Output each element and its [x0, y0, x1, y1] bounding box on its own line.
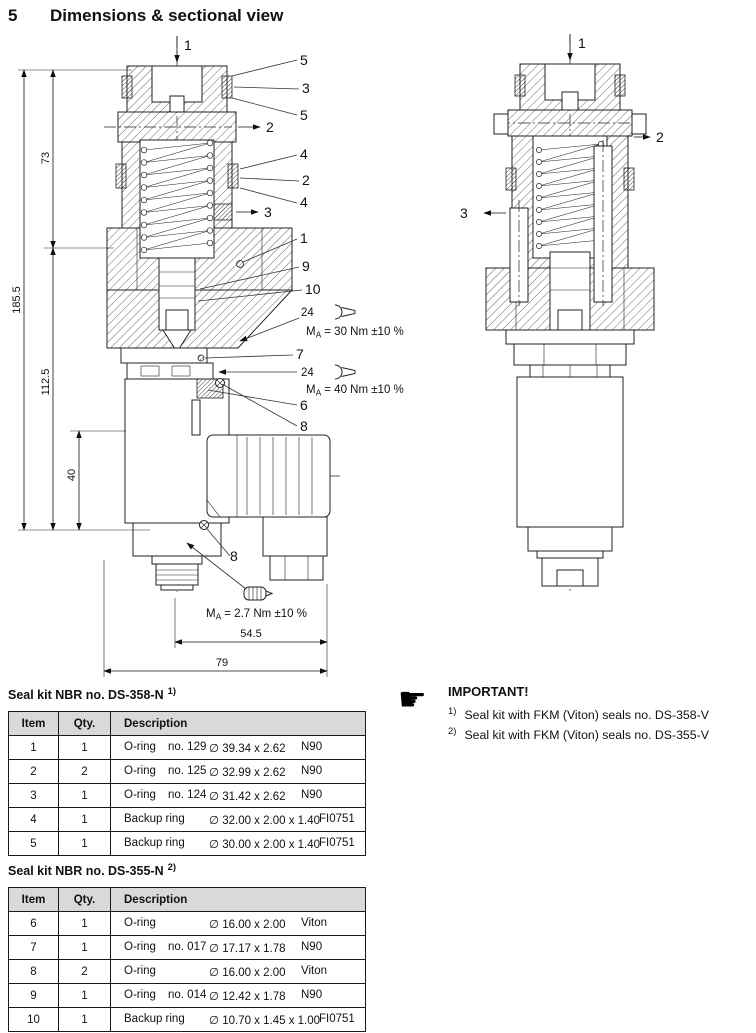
callout-label: 10	[305, 281, 321, 297]
cable-gland	[263, 517, 327, 556]
cell-item: 8	[9, 960, 59, 984]
seal-kit-2-table: Item Qty. Description 6 1 O-ring∅ 16.00 …	[8, 887, 366, 1032]
table-row: 2 2 O-ringno. 125∅ 32.99 x 2.62N90	[9, 760, 366, 784]
port-2-arrow: 2	[238, 119, 274, 135]
o-ring-seal	[198, 355, 204, 361]
callout-label: 8	[230, 548, 238, 564]
valve-seat	[550, 252, 590, 330]
cell-description: O-ringno. 125∅ 32.99 x 2.62N90	[111, 760, 366, 784]
port-3-arrow: 3	[236, 204, 272, 220]
page-title: 5 Dimensions & sectional view	[8, 6, 283, 26]
callout-label: 5	[300, 52, 308, 68]
table-row: 9 1 O-ringno. 014∅ 12.42 x 1.78N90	[9, 984, 366, 1008]
cell-qty: 2	[59, 960, 111, 984]
table-row: 5 1 Backup ring∅ 30.00 x 2.00 x 1.40FI07…	[9, 832, 366, 856]
cell-qty: 1	[59, 984, 111, 1008]
cell-qty: 1	[59, 936, 111, 960]
cell-item: 1	[9, 736, 59, 760]
cell-qty: 1	[59, 832, 111, 856]
port-plug	[214, 204, 232, 220]
seal-kit-title-text: Seal kit NBR no. DS-355-N	[8, 864, 164, 878]
dim-lower-height: 112.5	[40, 369, 52, 396]
torque-value: MA= 2.7 Nm ±10 %	[206, 608, 307, 622]
cell-item: 9	[9, 984, 59, 1008]
callout-label: 2	[266, 119, 274, 135]
callout-label: 1	[300, 230, 308, 246]
table-row: 3 1 O-ringno. 124∅ 31.42 x 2.62N90	[9, 784, 366, 808]
col-item: Item	[9, 888, 59, 912]
callout-label: 2	[302, 172, 310, 188]
torque-value: MA= 30 Nm ±10 %	[306, 326, 404, 340]
o-ring-seal	[237, 261, 244, 268]
cell-qty: 1	[59, 808, 111, 832]
port-1-arrow: 1	[570, 34, 586, 60]
cell-description: Backup ring∅ 10.70 x 1.45 x 1.00FI0751	[111, 1008, 366, 1032]
seal-kit-1-table: Item Qty. Description 1 1 O-ringno. 129∅…	[8, 711, 366, 856]
cell-description: Backup ring∅ 32.00 x 2.00 x 1.40FI0751	[111, 808, 366, 832]
callout-label: 1	[578, 35, 586, 51]
left-sectional-view: 1 2 3 5 3 5 4 2	[11, 36, 404, 677]
callout-label: 4	[300, 146, 308, 162]
open-end-wrench-icon	[323, 365, 355, 379]
torque-value: MA= 40 Nm ±10 %	[306, 384, 404, 398]
cell-description: O-ring∅ 16.00 x 2.00Viton	[111, 960, 366, 984]
section-title: Dimensions & sectional view	[50, 6, 283, 26]
cell-item: 4	[9, 808, 59, 832]
cell-description: O-ringno. 129∅ 39.34 x 2.62N90	[111, 736, 366, 760]
torque-note-40nm: 24 MA= 40 Nm ±10 %	[219, 365, 404, 398]
table-row: 8 2 O-ring∅ 16.00 x 2.00Viton	[9, 960, 366, 984]
o-ring-seal	[515, 75, 525, 96]
table-row: 6 1 O-ring∅ 16.00 x 2.00Viton	[9, 912, 366, 936]
din-connector	[207, 435, 330, 580]
callout-label: 2	[656, 129, 664, 145]
cell-item: 6	[9, 912, 59, 936]
footnote-ref: 2)	[168, 862, 176, 873]
port-3-arrow: 3	[460, 205, 506, 221]
wrench-size: 24	[301, 307, 314, 319]
col-qty: Qty.	[59, 712, 111, 736]
sectional-view-drawings: 1 2 3 5 3 5 4 2	[0, 28, 756, 680]
col-description: Description	[111, 712, 366, 736]
important-title: IMPORTANT!	[448, 684, 709, 699]
pointing-hand-icon: ☛	[398, 684, 448, 743]
hand-tight-icon	[244, 587, 272, 600]
cell-qty: 1	[59, 736, 111, 760]
cell-description: Backup ring∅ 30.00 x 2.00 x 1.40FI0751	[111, 832, 366, 856]
footnote-line: 2)Seal kit with FKM (Viton) seals no. DS…	[448, 724, 709, 744]
table-header-row: Item Qty. Description	[9, 888, 366, 912]
o-ring-seal	[228, 164, 238, 188]
wrench-size: 24	[301, 367, 314, 379]
table-row: 7 1 O-ringno. 017∅ 17.17 x 1.78N90	[9, 936, 366, 960]
col-qty: Qty.	[59, 888, 111, 912]
callout-label: 8	[300, 418, 308, 434]
cell-description: O-ringno. 014∅ 12.42 x 1.78N90	[111, 984, 366, 1008]
callout-label: 9	[302, 258, 310, 274]
callout-label: 3	[460, 205, 468, 221]
footnote-ref: 1)	[168, 686, 176, 697]
cell-item: 7	[9, 936, 59, 960]
dim-width-overall: 79	[216, 657, 228, 669]
callout-label: 4	[300, 194, 308, 210]
o-ring-seal	[615, 75, 625, 96]
bottom-plug	[133, 521, 221, 591]
cell-description: O-ring∅ 16.00 x 2.00Viton	[111, 912, 366, 936]
dim-connector-height: 40	[66, 469, 78, 481]
cell-qty: 1	[59, 784, 111, 808]
callout-label: 3	[264, 204, 272, 220]
dim-overall-height: 185.5	[11, 286, 23, 314]
dim-width-inner: 54.5	[240, 628, 261, 640]
table-row: 1 1 O-ringno. 129∅ 39.34 x 2.62N90	[9, 736, 366, 760]
table-row: 4 1 Backup ring∅ 32.00 x 2.00 x 1.40FI07…	[9, 808, 366, 832]
callout-label: 6	[300, 397, 308, 413]
o-ring-seal	[222, 76, 232, 98]
cell-item: 2	[9, 760, 59, 784]
o-ring-seal	[122, 76, 132, 98]
dim-upper-height: 73	[40, 152, 52, 164]
cell-qty: 1	[59, 1008, 111, 1032]
callout-label: 7	[296, 346, 304, 362]
table-row: 10 1 Backup ring∅ 10.70 x 1.45 x 1.00FI0…	[9, 1008, 366, 1032]
callout-label: 5	[300, 107, 308, 123]
seal-kit-1-title: Seal kit NBR no. DS-358-N1)	[8, 686, 176, 702]
cell-qty: 2	[59, 760, 111, 784]
cell-item: 5	[9, 832, 59, 856]
right-sectional-view: 1 2 3	[460, 34, 664, 592]
cell-item: 3	[9, 784, 59, 808]
seal-kit-title-text: Seal kit NBR no. DS-358-N	[8, 688, 164, 702]
open-end-wrench-icon	[323, 305, 355, 319]
callout-label: 1	[184, 37, 192, 53]
o-ring-seal	[116, 164, 126, 188]
cell-description: O-ringno. 124∅ 31.42 x 2.62N90	[111, 784, 366, 808]
o-ring-seal	[506, 168, 516, 190]
footnote-line: 1)Seal kit with FKM (Viton) seals no. DS…	[448, 704, 709, 724]
seal-kit-2-title: Seal kit NBR no. DS-355-N2)	[8, 862, 176, 878]
section-number: 5	[8, 6, 50, 26]
footnote-ref: 1)	[448, 706, 456, 717]
o-ring-seal	[624, 168, 634, 190]
footnote-ref: 2)	[448, 726, 456, 737]
cell-description: O-ringno. 017∅ 17.17 x 1.78N90	[111, 936, 366, 960]
document-page: 5 Dimensions & sectional view	[0, 0, 756, 1033]
port-1-arrow: 1	[177, 36, 192, 62]
col-item: Item	[9, 712, 59, 736]
table-header-row: Item Qty. Description	[9, 712, 366, 736]
cell-qty: 1	[59, 912, 111, 936]
callout-label: 3	[302, 80, 310, 96]
cell-item: 10	[9, 1008, 59, 1032]
pressure-switch-body	[506, 330, 634, 586]
important-note: ☛ IMPORTANT! 1)Seal kit with FKM (Viton)…	[398, 684, 754, 743]
col-description: Description	[111, 888, 366, 912]
